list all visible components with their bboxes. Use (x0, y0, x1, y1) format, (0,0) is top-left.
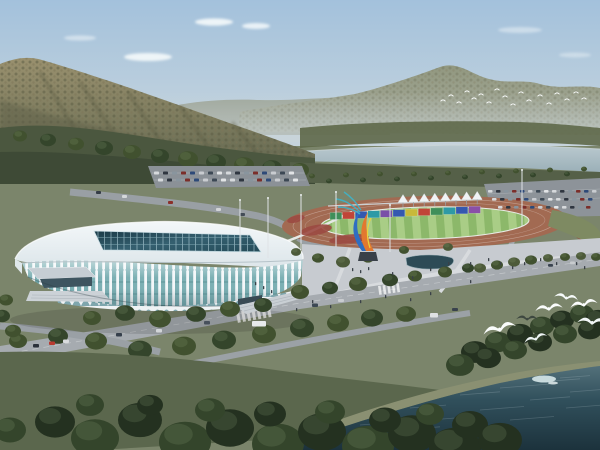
water-highlight (532, 376, 556, 383)
rendering-canvas (0, 0, 600, 450)
parking-lot-top (148, 166, 310, 188)
sculpture-pedestal (358, 252, 378, 261)
